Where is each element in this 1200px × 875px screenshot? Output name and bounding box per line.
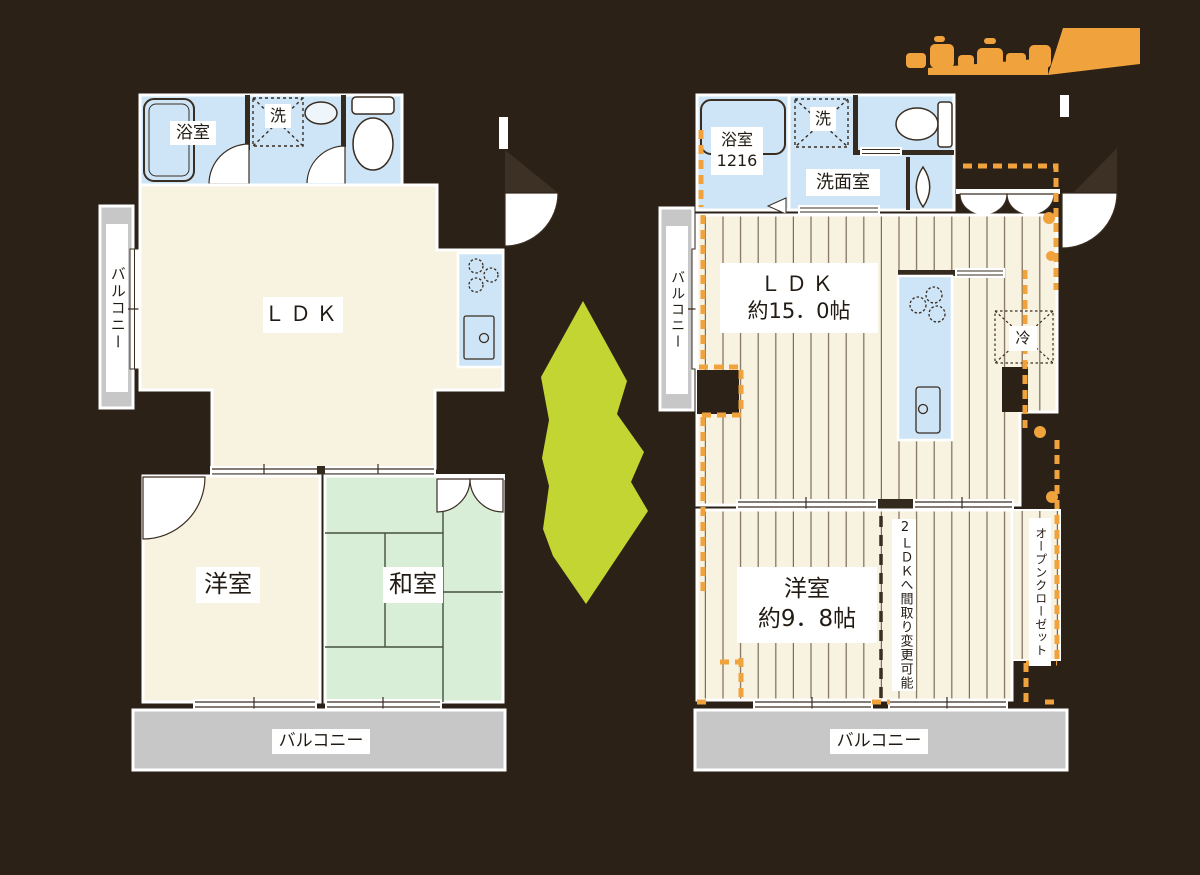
left-japanese-room-label: 和室	[383, 567, 443, 603]
left-washer-label: 洗	[265, 104, 291, 128]
right-ldk-floor	[697, 215, 1057, 505]
sliding-door	[860, 147, 902, 156]
entrance-door-arc	[1062, 193, 1117, 248]
left-plan	[100, 95, 558, 770]
floorplan-canvas: バルコニー 浴室 洗 ＬＤＫ 洋室 和室 バルコニー バルコニー 浴室 1216…	[0, 0, 1200, 875]
right-bath-label: 浴室 1216	[711, 127, 763, 175]
right-open-closet-label: オープンクローゼット	[1029, 518, 1051, 666]
window-icon	[955, 268, 1005, 278]
right-ldk-name: ＬＤＫ	[760, 271, 838, 298]
left-ldk-label: ＬＤＫ	[263, 297, 343, 333]
door-leaf	[1074, 148, 1117, 192]
right-side-balcony-label: バルコニー	[666, 226, 688, 394]
right-bottom-balcony-label: バルコニー	[830, 729, 928, 754]
left-bottom-balcony-label: バルコニー	[272, 729, 370, 754]
door-leaf	[505, 150, 557, 192]
right-western-room-label: 洋室 約9．8帖	[737, 567, 877, 643]
sink-icon	[305, 102, 337, 124]
left-bath-label: 浴室	[170, 121, 216, 145]
right-plan	[660, 95, 1117, 770]
renovation-banner	[906, 28, 1140, 75]
left-western-room-label: 洋室	[196, 567, 260, 603]
wall	[697, 370, 739, 414]
right-western-room-size: 約9．8帖	[758, 605, 856, 635]
right-ldk-label: ＬＤＫ 約15．0帖	[720, 263, 878, 333]
right-layout-note: 2ＬＤＫへ間取り変更可能	[892, 519, 916, 691]
entrance-door-arc	[505, 193, 558, 246]
closet-double-door	[956, 189, 1060, 215]
right-bath-size: 1216	[717, 151, 758, 172]
right-ldk-size: 約15．0帖	[747, 298, 850, 325]
right-washer-label: 洗	[810, 107, 836, 131]
right-washroom-label: 洗面室	[806, 169, 880, 196]
renovation-arrow	[541, 301, 648, 604]
toilet-icon	[352, 97, 394, 170]
right-bath-name: 浴室	[721, 130, 753, 151]
right-western-room-name: 洋室	[784, 575, 830, 605]
right-fridge-label: 冷	[1009, 326, 1037, 351]
left-side-balcony-label: バルコニー	[106, 224, 128, 392]
